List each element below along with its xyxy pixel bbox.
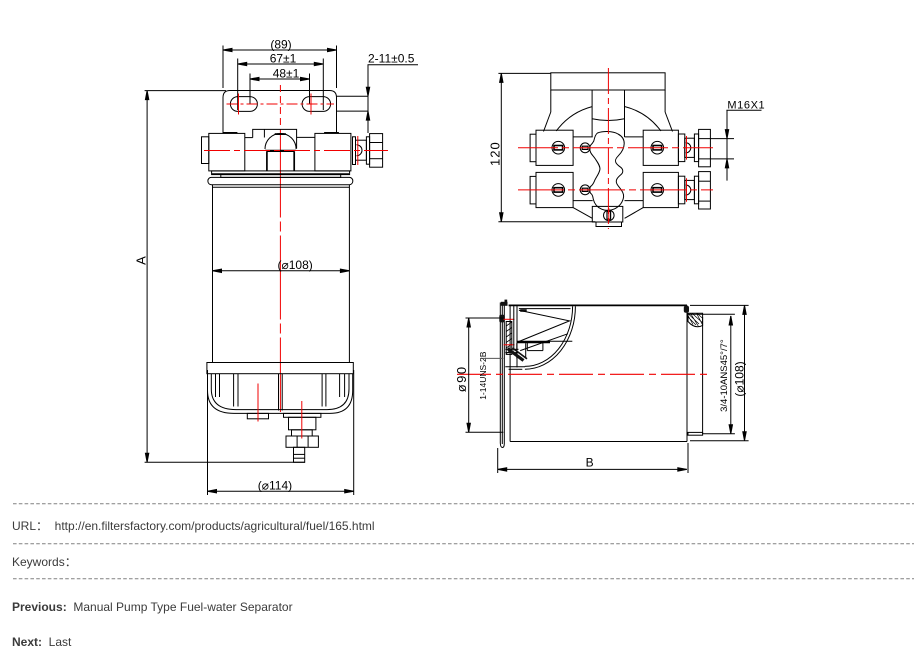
- svg-text:B: B: [586, 456, 594, 470]
- svg-text:A: A: [134, 256, 149, 265]
- svg-text:(⌀108): (⌀108): [733, 361, 747, 396]
- svg-text:3/4-10ANS45°/7°: 3/4-10ANS45°/7°: [719, 339, 730, 412]
- svg-text:67±1: 67±1: [270, 52, 297, 66]
- svg-text:(89): (89): [270, 38, 291, 52]
- svg-text:120: 120: [488, 141, 503, 166]
- svg-text:ø90: ø90: [454, 365, 469, 392]
- svg-text:48±1: 48±1: [273, 67, 300, 81]
- svg-text:(⌀108): (⌀108): [278, 258, 313, 272]
- svg-text:2-11±0.5: 2-11±0.5: [368, 52, 415, 66]
- svg-text:M16X1: M16X1: [727, 100, 765, 112]
- svg-text:(⌀114): (⌀114): [258, 479, 292, 493]
